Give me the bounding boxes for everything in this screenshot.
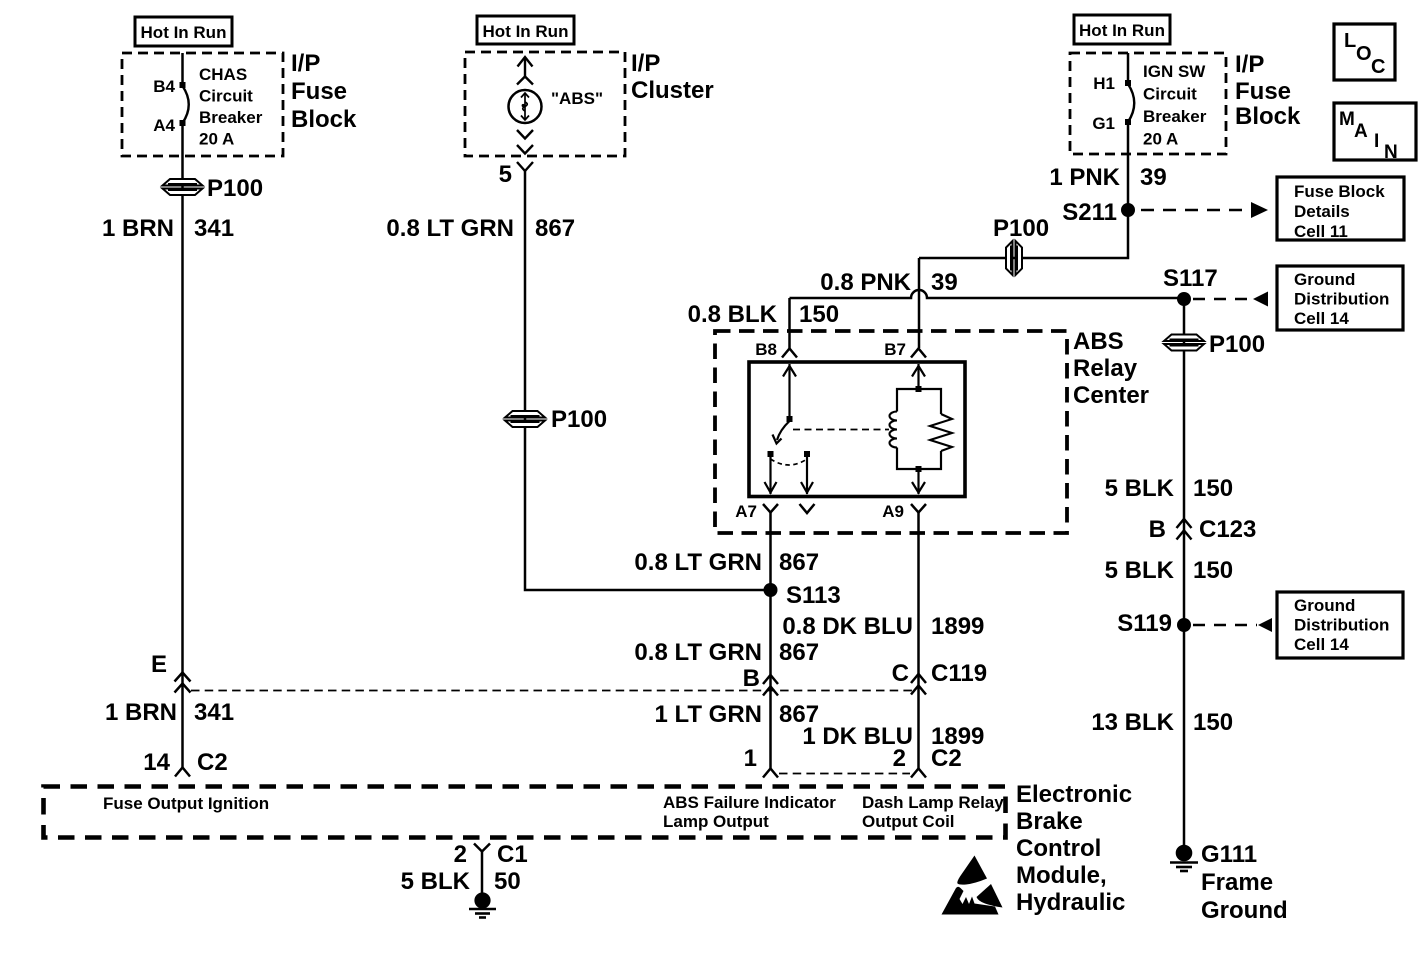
svg-text:C: C xyxy=(1371,56,1385,78)
svg-text:5 BLK: 5 BLK xyxy=(1105,475,1175,502)
svg-text:0.8 LT GRN: 0.8 LT GRN xyxy=(634,549,762,576)
svg-text:150: 150 xyxy=(799,301,839,328)
svg-text:B: B xyxy=(1149,516,1166,543)
svg-text:13 BLK: 13 BLK xyxy=(1091,709,1174,736)
svg-text:ABS Failure Indicator: ABS Failure Indicator xyxy=(663,793,836,812)
svg-text:Hot In Run: Hot In Run xyxy=(141,23,227,42)
svg-text:E: E xyxy=(151,651,167,678)
svg-text:Ground: Ground xyxy=(1294,596,1355,615)
svg-text:Cell 11: Cell 11 xyxy=(1294,222,1348,241)
svg-text:Breaker: Breaker xyxy=(1143,107,1207,126)
svg-text:C1: C1 xyxy=(497,841,528,868)
svg-text:G1: G1 xyxy=(1092,114,1115,133)
svg-text:Fuse: Fuse xyxy=(1235,78,1291,105)
svg-text:Distribution: Distribution xyxy=(1294,290,1389,309)
svg-text:1899: 1899 xyxy=(931,613,984,640)
svg-text:20 A: 20 A xyxy=(1143,130,1178,149)
svg-text:I/P: I/P xyxy=(631,50,660,77)
svg-text:C2: C2 xyxy=(931,745,962,772)
svg-text:Center: Center xyxy=(1073,382,1149,409)
svg-text:C119: C119 xyxy=(931,660,987,687)
svg-text:0.8 PNK: 0.8 PNK xyxy=(820,269,911,296)
svg-text:H1: H1 xyxy=(1093,74,1115,93)
svg-text:C: C xyxy=(892,660,909,687)
svg-text:1 PNK: 1 PNK xyxy=(1049,164,1120,191)
svg-text:1 BRN: 1 BRN xyxy=(105,699,177,726)
svg-text:S119: S119 xyxy=(1117,610,1172,637)
svg-text:1: 1 xyxy=(744,745,757,772)
svg-text:0.8 LT GRN: 0.8 LT GRN xyxy=(634,639,762,666)
svg-text:Output Coil: Output Coil xyxy=(862,812,955,831)
svg-text:B7: B7 xyxy=(884,340,906,359)
svg-text:A7: A7 xyxy=(735,502,757,521)
svg-text:Relay: Relay xyxy=(1073,355,1138,382)
svg-text:39: 39 xyxy=(1140,164,1167,191)
svg-text:Circuit: Circuit xyxy=(1143,85,1197,104)
svg-text:2: 2 xyxy=(893,745,906,772)
svg-text:0.8 BLK: 0.8 BLK xyxy=(688,301,778,328)
svg-text:2: 2 xyxy=(454,841,467,868)
svg-text:ABS: ABS xyxy=(1073,328,1124,355)
svg-text:Control: Control xyxy=(1016,835,1101,862)
svg-text:5 BLK: 5 BLK xyxy=(401,868,471,895)
svg-text:Cell 14: Cell 14 xyxy=(1294,635,1349,654)
svg-text:39: 39 xyxy=(931,269,958,296)
svg-text:IGN SW: IGN SW xyxy=(1143,62,1206,81)
svg-text:341: 341 xyxy=(194,699,234,726)
svg-text:Distribution: Distribution xyxy=(1294,616,1389,635)
svg-text:P100: P100 xyxy=(551,406,607,433)
svg-text:Details: Details xyxy=(1294,202,1350,221)
svg-text:341: 341 xyxy=(194,215,234,242)
svg-text:"ABS": "ABS" xyxy=(551,89,603,108)
svg-text:C2: C2 xyxy=(197,749,228,776)
svg-text:150: 150 xyxy=(1193,475,1233,502)
svg-text:867: 867 xyxy=(779,549,819,576)
svg-text:Block: Block xyxy=(1235,103,1301,130)
svg-text:Cell 14: Cell 14 xyxy=(1294,309,1349,328)
svg-text:CHAS: CHAS xyxy=(199,65,247,84)
svg-text:Fuse: Fuse xyxy=(291,78,347,105)
svg-text:Block: Block xyxy=(291,106,357,133)
svg-text:Fuse Block: Fuse Block xyxy=(1294,182,1385,201)
svg-text:Hydraulic: Hydraulic xyxy=(1016,889,1125,916)
svg-text:Frame: Frame xyxy=(1201,869,1273,896)
svg-text:Electronic: Electronic xyxy=(1016,781,1132,808)
svg-text:0.8 DK BLU: 0.8 DK BLU xyxy=(782,613,913,640)
svg-text:Module,: Module, xyxy=(1016,862,1107,889)
svg-text:Cluster: Cluster xyxy=(631,77,714,104)
svg-text:B: B xyxy=(743,665,760,692)
svg-text:1 LT GRN: 1 LT GRN xyxy=(654,701,762,728)
svg-text:150: 150 xyxy=(1193,557,1233,584)
svg-text:5: 5 xyxy=(499,161,512,188)
svg-text:P100: P100 xyxy=(993,215,1049,242)
svg-text:P100: P100 xyxy=(207,175,263,202)
svg-text:Hot In Run: Hot In Run xyxy=(1079,21,1165,40)
svg-text:S117: S117 xyxy=(1163,265,1218,292)
svg-text:I/P: I/P xyxy=(291,50,320,77)
svg-text:M: M xyxy=(1339,109,1355,130)
svg-text:1 BRN: 1 BRN xyxy=(102,215,174,242)
svg-text:Lamp Output: Lamp Output xyxy=(663,812,769,831)
svg-text:Circuit: Circuit xyxy=(199,87,253,106)
svg-text:S113: S113 xyxy=(786,582,841,609)
svg-text:50: 50 xyxy=(494,868,521,895)
svg-text:S211: S211 xyxy=(1062,199,1117,226)
svg-text:I: I xyxy=(1374,131,1379,152)
svg-text:B4: B4 xyxy=(153,77,175,96)
svg-text:L: L xyxy=(1344,30,1356,52)
svg-text:Breaker: Breaker xyxy=(199,108,263,127)
svg-text:Hot In Run: Hot In Run xyxy=(483,22,569,41)
svg-text:14: 14 xyxy=(143,749,170,776)
svg-text:5 BLK: 5 BLK xyxy=(1105,557,1175,584)
svg-text:B8: B8 xyxy=(755,340,777,359)
svg-text:N: N xyxy=(1384,142,1398,163)
svg-text:A4: A4 xyxy=(153,116,175,135)
svg-text:I/P: I/P xyxy=(1235,51,1264,78)
svg-text:G111: G111 xyxy=(1201,841,1257,868)
svg-text:150: 150 xyxy=(1193,709,1233,736)
svg-text:C123: C123 xyxy=(1199,516,1256,543)
svg-text:Dash Lamp Relay: Dash Lamp Relay xyxy=(862,793,1004,812)
svg-text:A: A xyxy=(1354,121,1368,142)
svg-text:Brake: Brake xyxy=(1016,808,1083,835)
svg-text:Ground: Ground xyxy=(1294,270,1355,289)
svg-text:O: O xyxy=(1356,43,1372,65)
svg-text:20 A: 20 A xyxy=(199,130,234,149)
svg-text:Fuse Output Ignition: Fuse Output Ignition xyxy=(103,794,269,813)
svg-text:P100: P100 xyxy=(1209,331,1265,358)
svg-text:Ground: Ground xyxy=(1201,897,1288,924)
svg-text:867: 867 xyxy=(535,215,575,242)
svg-text:867: 867 xyxy=(779,639,819,666)
svg-text:A9: A9 xyxy=(882,502,904,521)
svg-text:0.8 LT GRN: 0.8 LT GRN xyxy=(386,215,514,242)
